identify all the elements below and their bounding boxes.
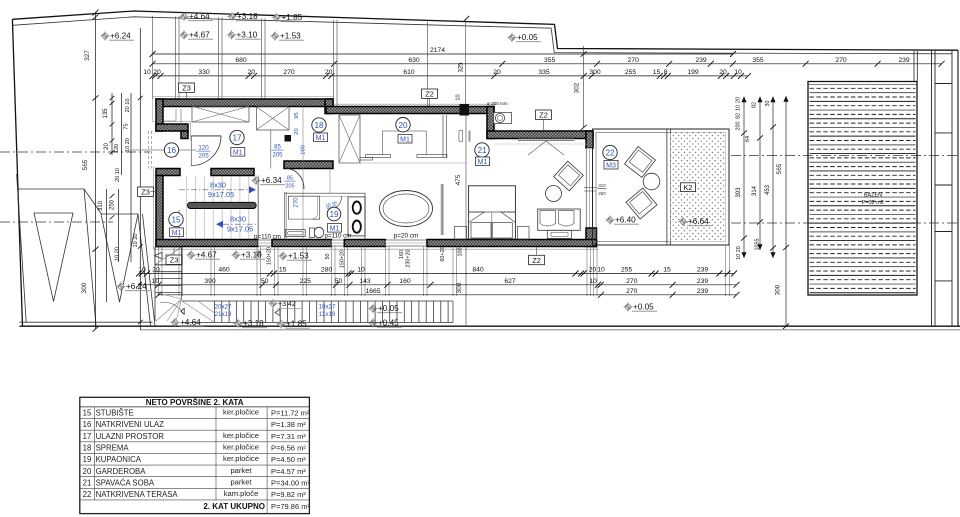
svg-text:M1: M1 [172,230,182,237]
svg-text:+0.05: +0.05 [633,303,654,312]
svg-text:BAZEN: BAZEN [864,193,882,199]
svg-text:Z3: Z3 [170,256,179,265]
svg-text:16: 16 [83,420,92,429]
svg-text:17: 17 [232,134,242,143]
svg-text:270: 270 [626,288,638,295]
svg-text:P=4.57 m²: P=4.57 m² [271,467,306,476]
svg-text:225: 225 [300,278,312,285]
svg-text:135: 135 [103,108,109,119]
svg-text:302: 302 [574,82,581,93]
svg-text:+3.10: +3.10 [241,251,262,260]
svg-text:Z3: Z3 [141,188,150,197]
svg-text:p=110 cm: p=110 cm [325,233,352,240]
svg-text:2174: 2174 [430,47,445,54]
svg-text:P=6.56 m²: P=6.56 m² [271,443,306,452]
svg-text:20: 20 [83,467,92,476]
svg-text:85: 85 [287,176,293,182]
svg-text:143: 143 [359,278,371,285]
svg-text:M1: M1 [478,159,488,166]
svg-text:+4.67: +4.67 [196,251,217,260]
svg-text:19: 19 [83,455,92,464]
svg-text:18: 18 [314,121,324,130]
svg-text:11x19: 11x19 [319,311,336,318]
svg-text:+0.45: +0.45 [378,319,399,328]
svg-text:460: 460 [218,267,230,274]
svg-text:15: 15 [279,267,287,274]
svg-text:10: 10 [736,105,742,111]
svg-text:250: 250 [598,191,606,196]
svg-text:20: 20 [736,97,742,103]
svg-text:GARDEROBA: GARDEROBA [96,467,147,476]
svg-text:610: 610 [403,69,415,76]
svg-text:+3.18: +3.18 [237,12,258,21]
svg-text:60+20: 60+20 [440,246,446,261]
svg-text:+6.34: +6.34 [261,176,282,185]
svg-text:M1: M1 [400,136,410,143]
svg-text:150+20: 150+20 [340,250,346,268]
svg-text:310: 310 [98,200,104,211]
svg-text:565: 565 [776,163,783,174]
svg-text:+6.64: +6.64 [688,217,709,226]
svg-text:20x27: 20x27 [215,303,232,310]
svg-text:ker.pločice: ker.pločice [223,431,259,440]
svg-text:+0.05: +0.05 [378,304,399,313]
svg-text:ULAZNI PROSTOR: ULAZNI PROSTOR [96,432,165,441]
svg-text:P=32 m2: P=32 m2 [862,200,884,206]
svg-text:21: 21 [83,478,92,487]
svg-text:453: 453 [765,184,771,195]
svg-text:239: 239 [697,278,709,285]
svg-text:270: 270 [626,278,638,285]
svg-text:300: 300 [589,69,601,76]
svg-text:+3.42: +3.42 [278,301,296,308]
svg-text:M1: M1 [330,226,340,233]
svg-text:120: 120 [114,144,120,153]
svg-text:310: 310 [598,183,606,188]
svg-text:20,: 20, [719,69,729,76]
svg-text:300: 300 [775,284,782,295]
svg-text:95: 95 [294,112,300,118]
svg-text:21x19: 21x19 [215,311,232,318]
svg-text:20: 20 [153,69,161,76]
svg-text:390: 390 [204,278,216,285]
svg-text:ker.pločice: ker.pločice [223,442,259,451]
svg-text:680: 680 [235,57,247,64]
svg-text:20: 20 [152,267,160,274]
svg-text:19: 19 [329,210,339,219]
svg-text:SPAVAĆA SOBA: SPAVAĆA SOBA [96,478,155,487]
svg-text:239: 239 [697,267,709,274]
svg-text:NETO POVRŠINE 2. KATA: NETO POVRŠINE 2. KATA [146,398,244,407]
svg-text:P=7.31 m²: P=7.31 m² [271,432,306,441]
svg-text:120: 120 [198,145,209,152]
svg-text:kam.ploče: kam.ploče [224,489,259,498]
svg-text:10 20: 10 20 [736,246,742,260]
svg-text:255: 255 [625,69,637,76]
svg-text:627: 627 [504,278,516,285]
svg-text:10 20: 10 20 [133,234,139,248]
svg-text:75: 75 [124,123,130,129]
svg-text:630: 630 [408,57,420,64]
svg-text:1665: 1665 [365,288,380,295]
svg-text:20 10: 20 10 [125,99,131,113]
svg-text:P=9.82 m²: P=9.82 m² [271,490,306,499]
svg-text:P=79.86 m²: P=79.86 m² [271,502,310,511]
svg-text:270: 270 [283,69,295,76]
svg-text:160: 160 [399,278,411,285]
svg-text:205: 205 [198,153,209,160]
svg-text:300: 300 [456,282,463,293]
svg-text:22: 22 [605,149,615,158]
svg-text:+1.53: +1.53 [288,252,309,261]
svg-text:10: 10 [597,267,605,274]
svg-text:parket: parket [230,477,252,486]
svg-text:150+20: 150+20 [266,247,272,265]
svg-text:16: 16 [167,146,177,155]
svg-text:100: 100 [458,248,464,257]
svg-text:Z2: Z2 [532,256,541,265]
svg-text:82: 82 [736,113,742,119]
svg-text:9x17.05: 9x17.05 [208,190,234,199]
svg-text:20: 20 [589,267,597,274]
svg-text:M1: M1 [316,135,326,142]
svg-text:250: 250 [110,199,116,210]
svg-text:+6.24: +6.24 [126,282,147,291]
svg-text:+1.53: +1.53 [280,32,301,41]
svg-text:15: 15 [663,267,671,274]
svg-text:64: 64 [745,136,751,142]
svg-text:18: 18 [83,443,92,452]
svg-text:50: 50 [335,278,343,285]
svg-text:82: 82 [752,102,758,108]
svg-text:+1.85: +1.85 [286,320,307,329]
svg-text:270: 270 [294,197,300,208]
svg-text:205: 205 [285,184,294,190]
svg-text:300: 300 [81,282,88,293]
svg-text:50: 50 [325,254,331,260]
svg-text:565: 565 [82,159,89,170]
svg-text:20 10: 20 10 [115,168,121,182]
svg-text:SPREMA: SPREMA [96,443,130,452]
svg-text:239: 239 [697,288,709,295]
svg-text:+3.18: +3.18 [243,319,264,328]
svg-text:10x27: 10x27 [319,303,336,310]
svg-text:Z3: Z3 [182,84,191,93]
svg-text:8x30: 8x30 [210,181,226,190]
svg-text:+4.67: +4.67 [189,31,210,40]
svg-text:280: 280 [321,267,333,274]
svg-text:+1.85: +1.85 [282,13,303,22]
svg-text:Z2: Z2 [425,90,434,99]
svg-text:15: 15 [83,409,92,418]
svg-text:9x17.05: 9x17.05 [227,225,253,234]
svg-text:+4.64: +4.64 [189,12,210,21]
svg-text:22: 22 [83,490,92,499]
svg-text:P=4.50 m²: P=4.50 m² [271,455,306,464]
svg-text:P=11.72 m²: P=11.72 m² [271,409,310,418]
svg-text:NATKRIVENA TERASA: NATKRIVENA TERASA [96,490,179,499]
svg-text:STUBIŠTE: STUBIŠTE [96,409,134,418]
svg-text:p=110 cm: p=110 cm [254,234,281,241]
svg-text:ker.pločice: ker.pločice [223,454,259,463]
svg-text:+0.05: +0.05 [517,33,538,42]
svg-text:P=1.38 m²: P=1.38 m² [271,420,306,429]
svg-text:P=34.00 m²: P=34.00 m² [271,478,310,487]
svg-text:239: 239 [898,57,910,64]
svg-text:15: 15 [171,216,181,225]
svg-text:325: 325 [459,62,465,73]
svg-text:10: 10 [357,267,365,274]
svg-text:21: 21 [477,146,487,155]
svg-text:M3: M3 [606,162,616,169]
svg-text:100: 100 [301,145,307,155]
svg-text:M1: M1 [233,150,243,157]
svg-text:840: 840 [472,267,484,274]
svg-text:230+20: 230+20 [406,249,412,267]
svg-text:ø 300 mm: ø 300 mm [487,101,508,106]
svg-text:199: 199 [687,69,699,76]
svg-text:314: 314 [752,185,758,196]
svg-text:20: 20 [294,128,300,134]
svg-text:1055: 1055 [755,239,761,251]
svg-text:ker.pločice: ker.pločice [223,408,259,417]
svg-text:20: 20 [325,69,333,76]
svg-text:475: 475 [455,174,462,185]
svg-text:K2: K2 [683,183,692,192]
svg-text:KUPAONICA: KUPAONICA [96,455,142,464]
svg-text:10 20: 10 20 [115,247,121,261]
svg-text:20: 20 [398,121,408,130]
svg-text:+6.40: +6.40 [615,216,636,225]
svg-text:10: 10 [456,94,462,100]
svg-text:30: 30 [765,101,771,107]
svg-text:10: 10 [734,69,742,76]
svg-text:10: 10 [138,267,146,274]
svg-text:8x30: 8x30 [230,215,246,224]
svg-text:NATKRIVENI ULAZ: NATKRIVENI ULAZ [96,420,165,429]
svg-text:50: 50 [261,278,269,285]
svg-text:+6.24: +6.24 [110,32,131,41]
svg-text:15: 15 [653,69,661,76]
svg-text:160: 160 [399,250,405,259]
svg-text:20: 20 [248,69,256,76]
svg-text:10: 10 [589,278,597,285]
svg-text:10: 10 [143,69,151,76]
svg-text:393: 393 [736,187,742,198]
svg-text:+3.10: +3.10 [237,31,258,40]
svg-text:20: 20 [104,143,110,150]
svg-text:20: 20 [493,69,501,76]
svg-text:8: 8 [664,69,668,76]
svg-text:parket: parket [230,466,252,475]
svg-text:335: 335 [538,69,550,76]
svg-text:+4.64: +4.64 [180,318,201,327]
svg-text:200: 200 [736,122,742,131]
svg-text:270: 270 [835,57,847,64]
svg-text:205: 205 [272,153,283,159]
svg-text:327: 327 [84,50,91,61]
svg-text:355: 355 [752,57,764,64]
svg-text:270: 270 [628,57,640,64]
svg-text:239: 239 [695,57,707,64]
svg-text:2. KAT UKUPNO: 2. KAT UKUPNO [203,502,265,511]
svg-text:Z2: Z2 [539,111,548,120]
svg-text:255: 255 [621,267,633,274]
svg-text:p=20 cm: p=20 cm [394,232,419,239]
svg-text:330: 330 [198,69,210,76]
svg-text:17: 17 [83,432,92,441]
svg-text:355: 355 [544,57,556,64]
svg-text:10: 10 [152,278,160,285]
svg-text:85: 85 [274,145,281,151]
